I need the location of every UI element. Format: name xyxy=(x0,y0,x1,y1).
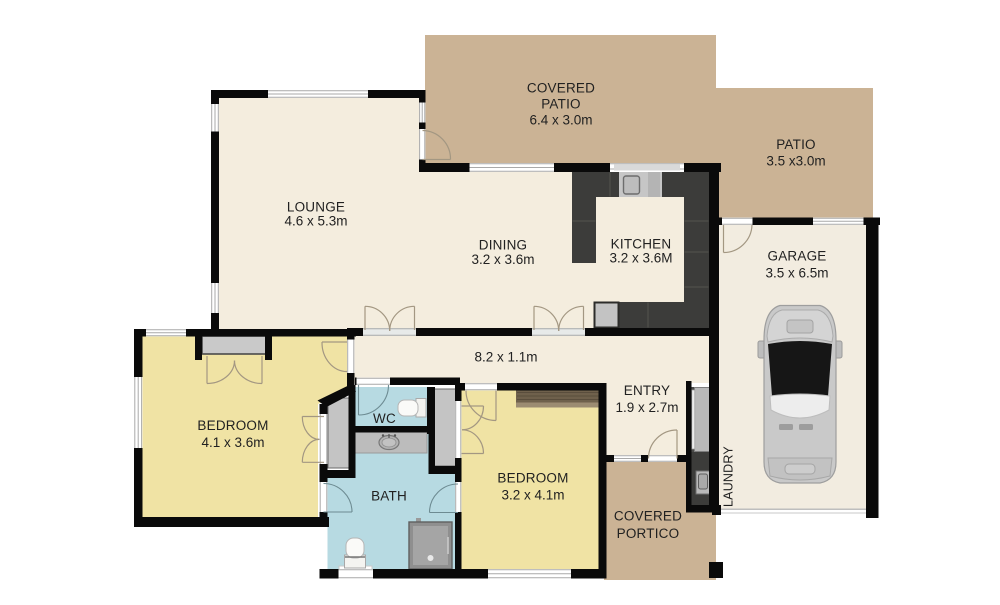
svg-text:3.2 x 3.6m: 3.2 x 3.6m xyxy=(471,252,534,267)
svg-text:LAUNDRY: LAUNDRY xyxy=(722,446,736,507)
svg-text:3.2 x 3.6M: 3.2 x 3.6M xyxy=(609,251,672,266)
svg-text:8.2 x 1.1m: 8.2 x 1.1m xyxy=(474,350,537,365)
svg-text:GARAGE: GARAGE xyxy=(768,249,827,264)
svg-text:6.4 x 3.0m: 6.4 x 3.0m xyxy=(529,113,592,128)
svg-text:BATH: BATH xyxy=(371,489,407,504)
svg-text:LOUNGE: LOUNGE xyxy=(287,200,345,215)
svg-text:3.2 x 4.1m: 3.2 x 4.1m xyxy=(501,488,564,503)
svg-text:3.5 x 6.5m: 3.5 x 6.5m xyxy=(765,266,828,281)
svg-text:COVERED: COVERED xyxy=(527,81,595,96)
svg-text:DINING: DINING xyxy=(479,238,527,253)
svg-text:WC: WC xyxy=(373,411,396,426)
svg-text:4.1 x 3.6m: 4.1 x 3.6m xyxy=(201,435,264,450)
svg-text:PORTICO: PORTICO xyxy=(617,526,680,541)
svg-text:PATIO: PATIO xyxy=(541,97,581,112)
svg-text:4.6 x 5.3m: 4.6 x 5.3m xyxy=(284,214,347,229)
svg-text:COVERED: COVERED xyxy=(614,509,682,524)
svg-text:ENTRY: ENTRY xyxy=(624,383,671,398)
svg-text:1.9 x 2.7m: 1.9 x 2.7m xyxy=(615,400,678,415)
svg-text:BEDROOM: BEDROOM xyxy=(497,471,568,486)
svg-text:PATIO: PATIO xyxy=(776,137,816,152)
svg-text:3.5 x3.0m: 3.5 x3.0m xyxy=(766,154,825,169)
svg-text:BEDROOM: BEDROOM xyxy=(197,418,268,433)
svg-text:KITCHEN: KITCHEN xyxy=(611,237,672,252)
